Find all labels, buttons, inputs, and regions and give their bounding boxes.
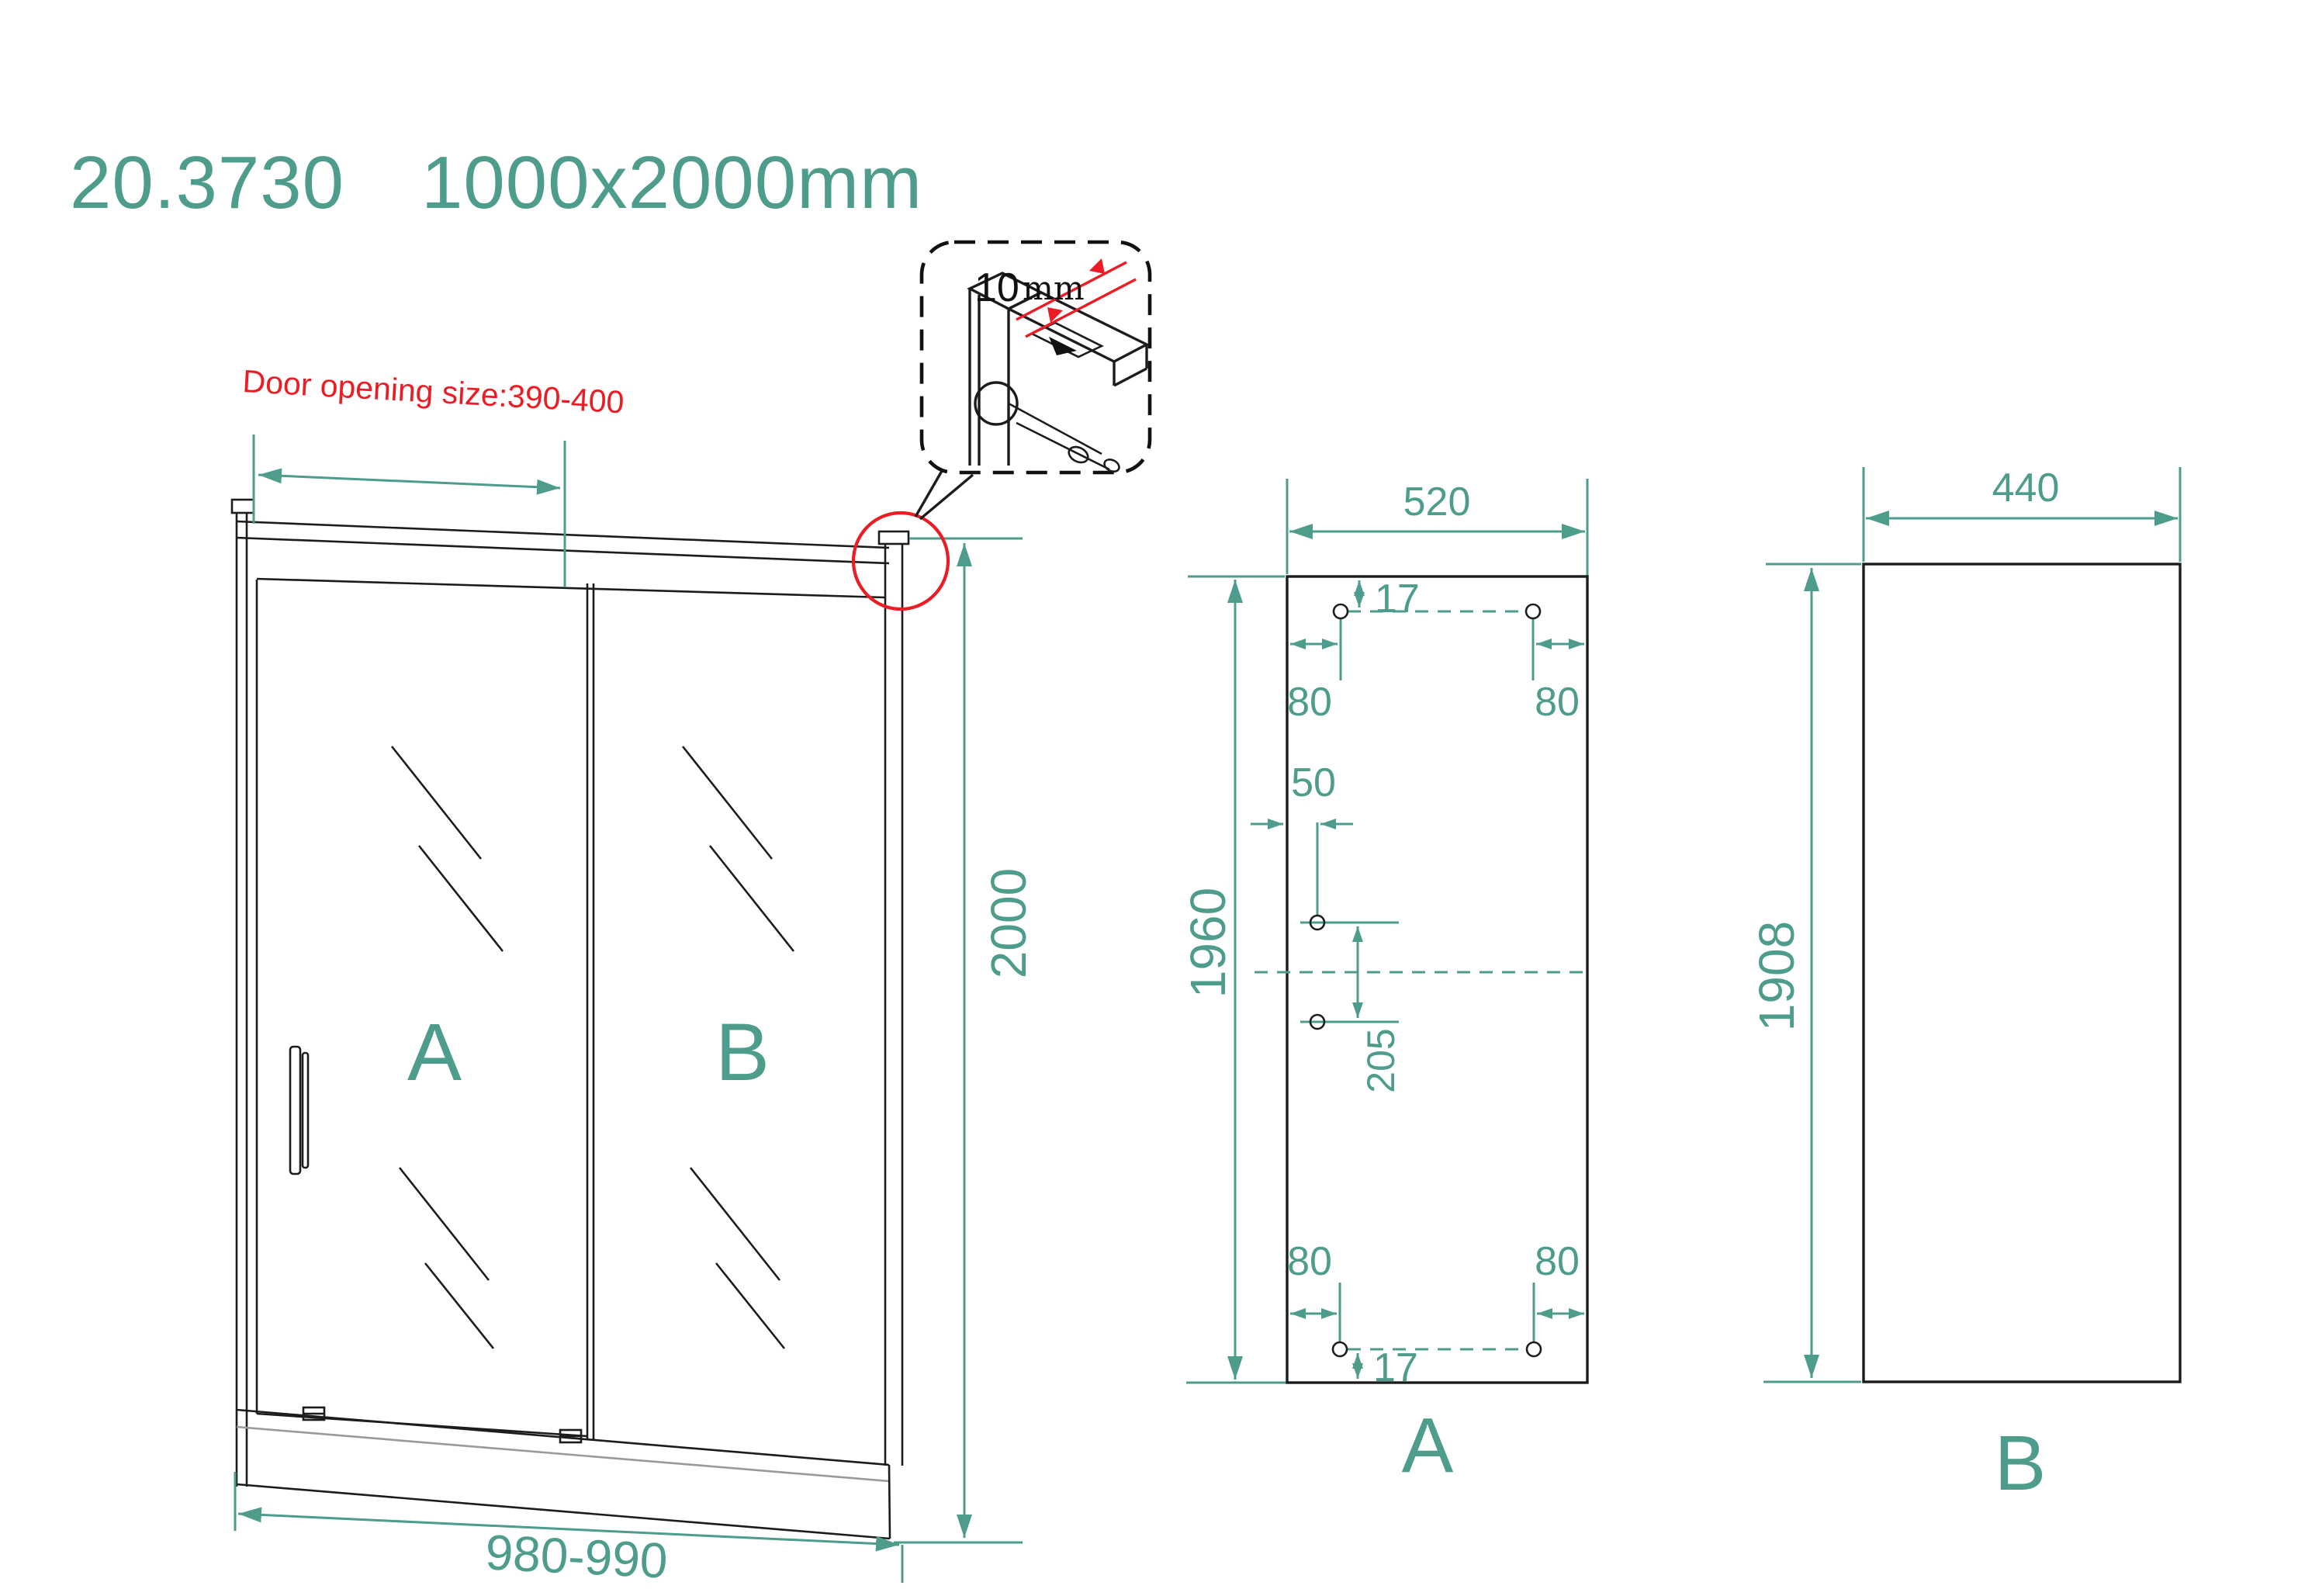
panel-b-view: 440 1908 B	[1749, 466, 2180, 1507]
panel-a-top-right-hole-value: 80	[1535, 680, 1580, 725]
panel-b-height-value: 1908	[1749, 921, 1805, 1031]
panel-a-name: A	[1402, 1402, 1454, 1489]
door-handle	[290, 1047, 308, 1174]
panel-a-top-offset-value: 17	[1375, 576, 1420, 621]
thickness-unit: mm	[1023, 269, 1085, 307]
drawing-canvas: 20.3730 1000x2000mm	[0, 0, 2298, 1596]
panel-b-outline	[1864, 564, 2180, 1382]
front-view-door-drawing: A B	[232, 500, 908, 1539]
panel-a-mounting-holes	[1310, 604, 1541, 1356]
panel-a-bottom-left-hole-value: 80	[1287, 1239, 1332, 1284]
corner-callout: 10 mm	[853, 242, 1150, 609]
right-post-cap	[879, 531, 908, 544]
product-code: 20.3730	[70, 141, 344, 224]
panel-a-height-value: 1960	[1180, 888, 1236, 998]
thickness-value: 10	[974, 265, 1019, 310]
panel-b-width-value: 440	[1992, 466, 2060, 511]
panel-a-mid-offset-value: 50	[1291, 760, 1336, 805]
panel-a-top-left-hole-value: 80	[1287, 680, 1332, 725]
door-height-value: 2000	[981, 868, 1037, 978]
glass-b-label: B	[715, 1007, 770, 1098]
sheet-title: 20.3730 1000x2000mm	[70, 141, 922, 224]
product-size: 1000x2000mm	[421, 141, 922, 224]
glass-a-label: A	[407, 1007, 462, 1098]
left-profile-cap	[232, 500, 254, 513]
panel-a-mid-spacing-value: 205	[1359, 1028, 1403, 1092]
panel-b-name: B	[1995, 1420, 2047, 1507]
door-opening-note: Door opening size:390-400	[241, 363, 625, 420]
panel-a-bottom-offset-value: 17	[1373, 1345, 1418, 1390]
technical-drawing-sheet: 20.3730 1000x2000mm	[0, 0, 2298, 1596]
panel-a-bottom-right-hole-value: 80	[1535, 1239, 1580, 1284]
door-width-value: 980-990	[484, 1524, 669, 1588]
door-opening-dimension: Door opening size:390-400	[241, 363, 625, 587]
callout-circle	[853, 513, 948, 609]
panel-a-view: 520 1960 17 80 80 50 205 80 80 17 A	[1180, 479, 1588, 1489]
door-height-dimension: 2000	[894, 538, 1037, 1542]
panel-a-width-value: 520	[1403, 479, 1471, 524]
